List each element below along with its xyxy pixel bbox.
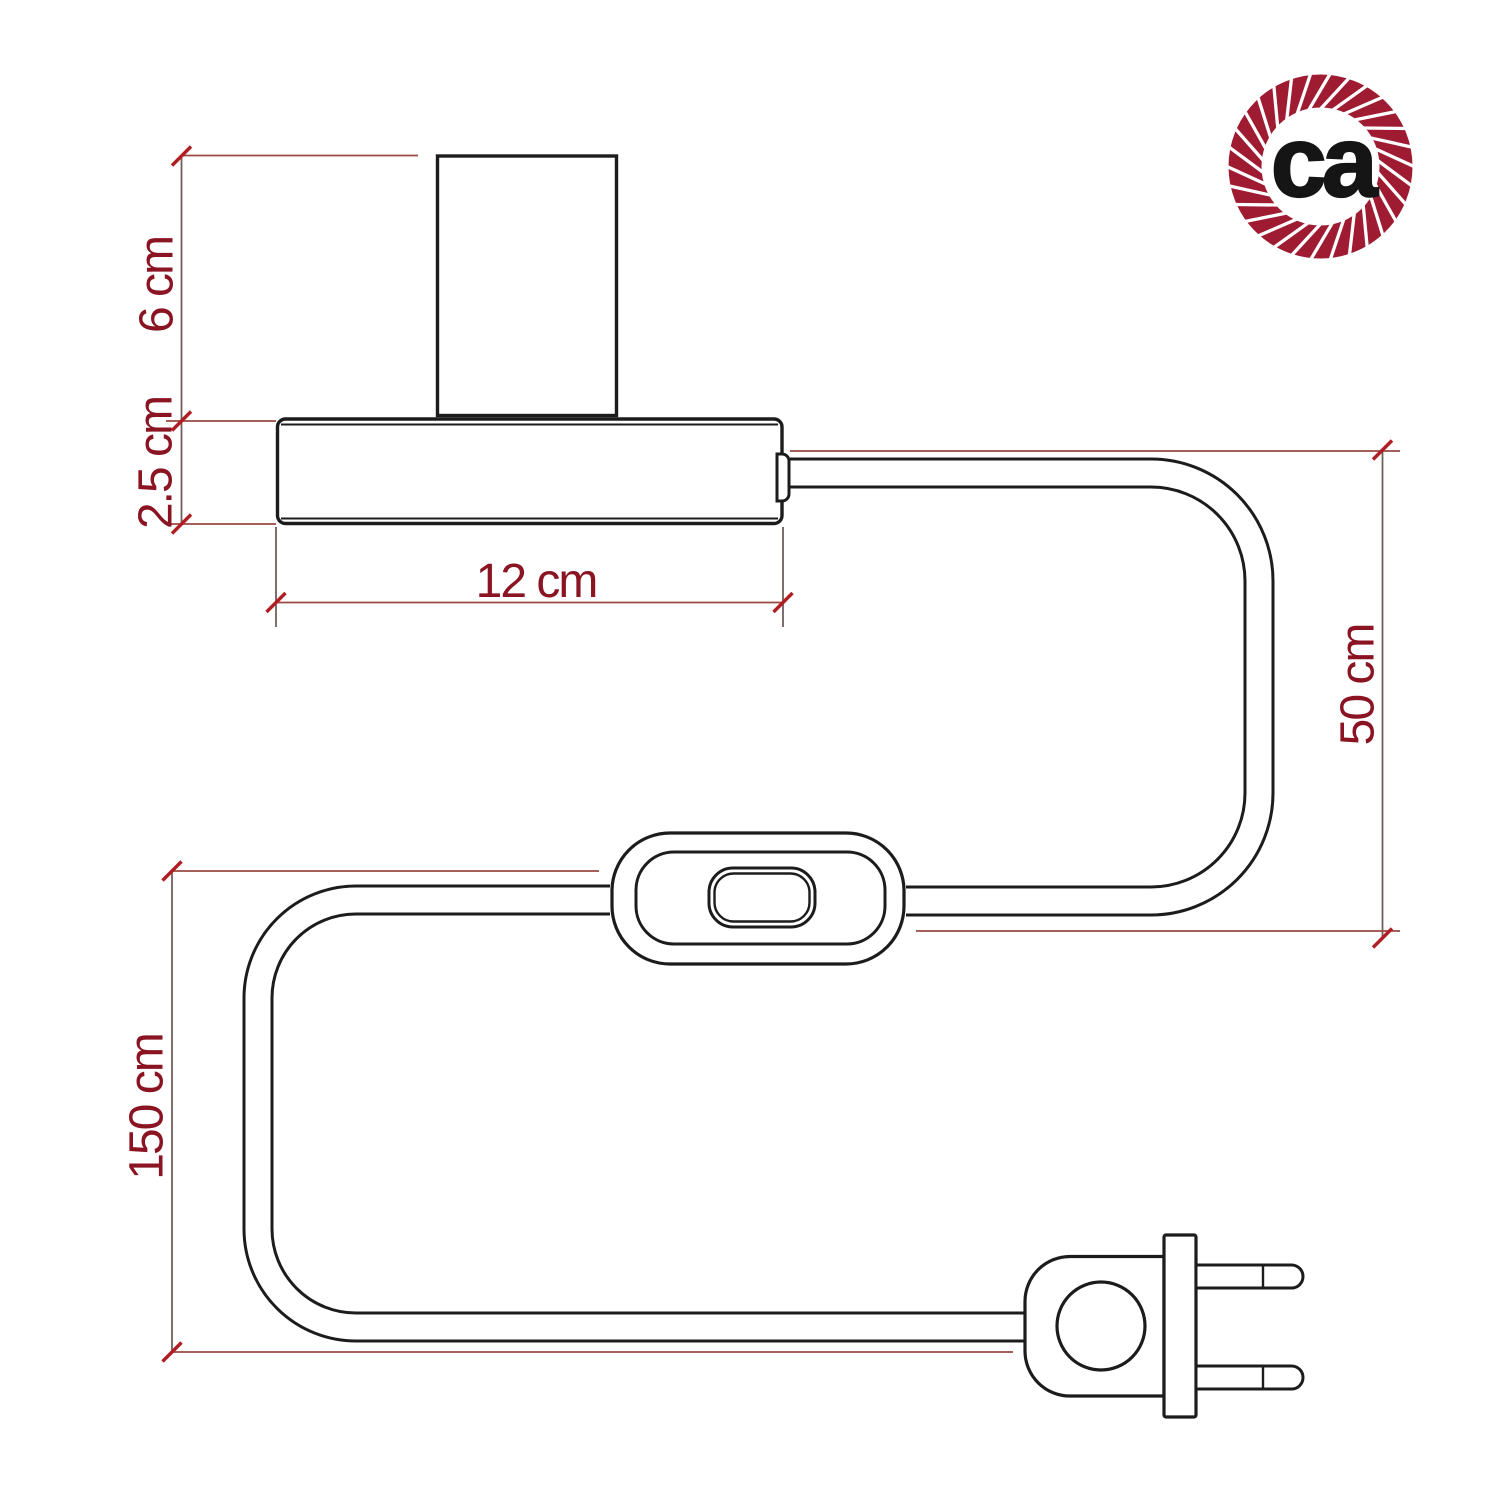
svg-text:2.5 cm: 2.5 cm [130, 397, 183, 529]
svg-text:12 cm: 12 cm [476, 555, 597, 608]
svg-text:ca: ca [1271, 106, 1379, 218]
svg-text:50 cm: 50 cm [1332, 625, 1385, 746]
svg-text:150 cm: 150 cm [121, 1034, 174, 1179]
svg-text:6 cm: 6 cm [131, 237, 184, 333]
